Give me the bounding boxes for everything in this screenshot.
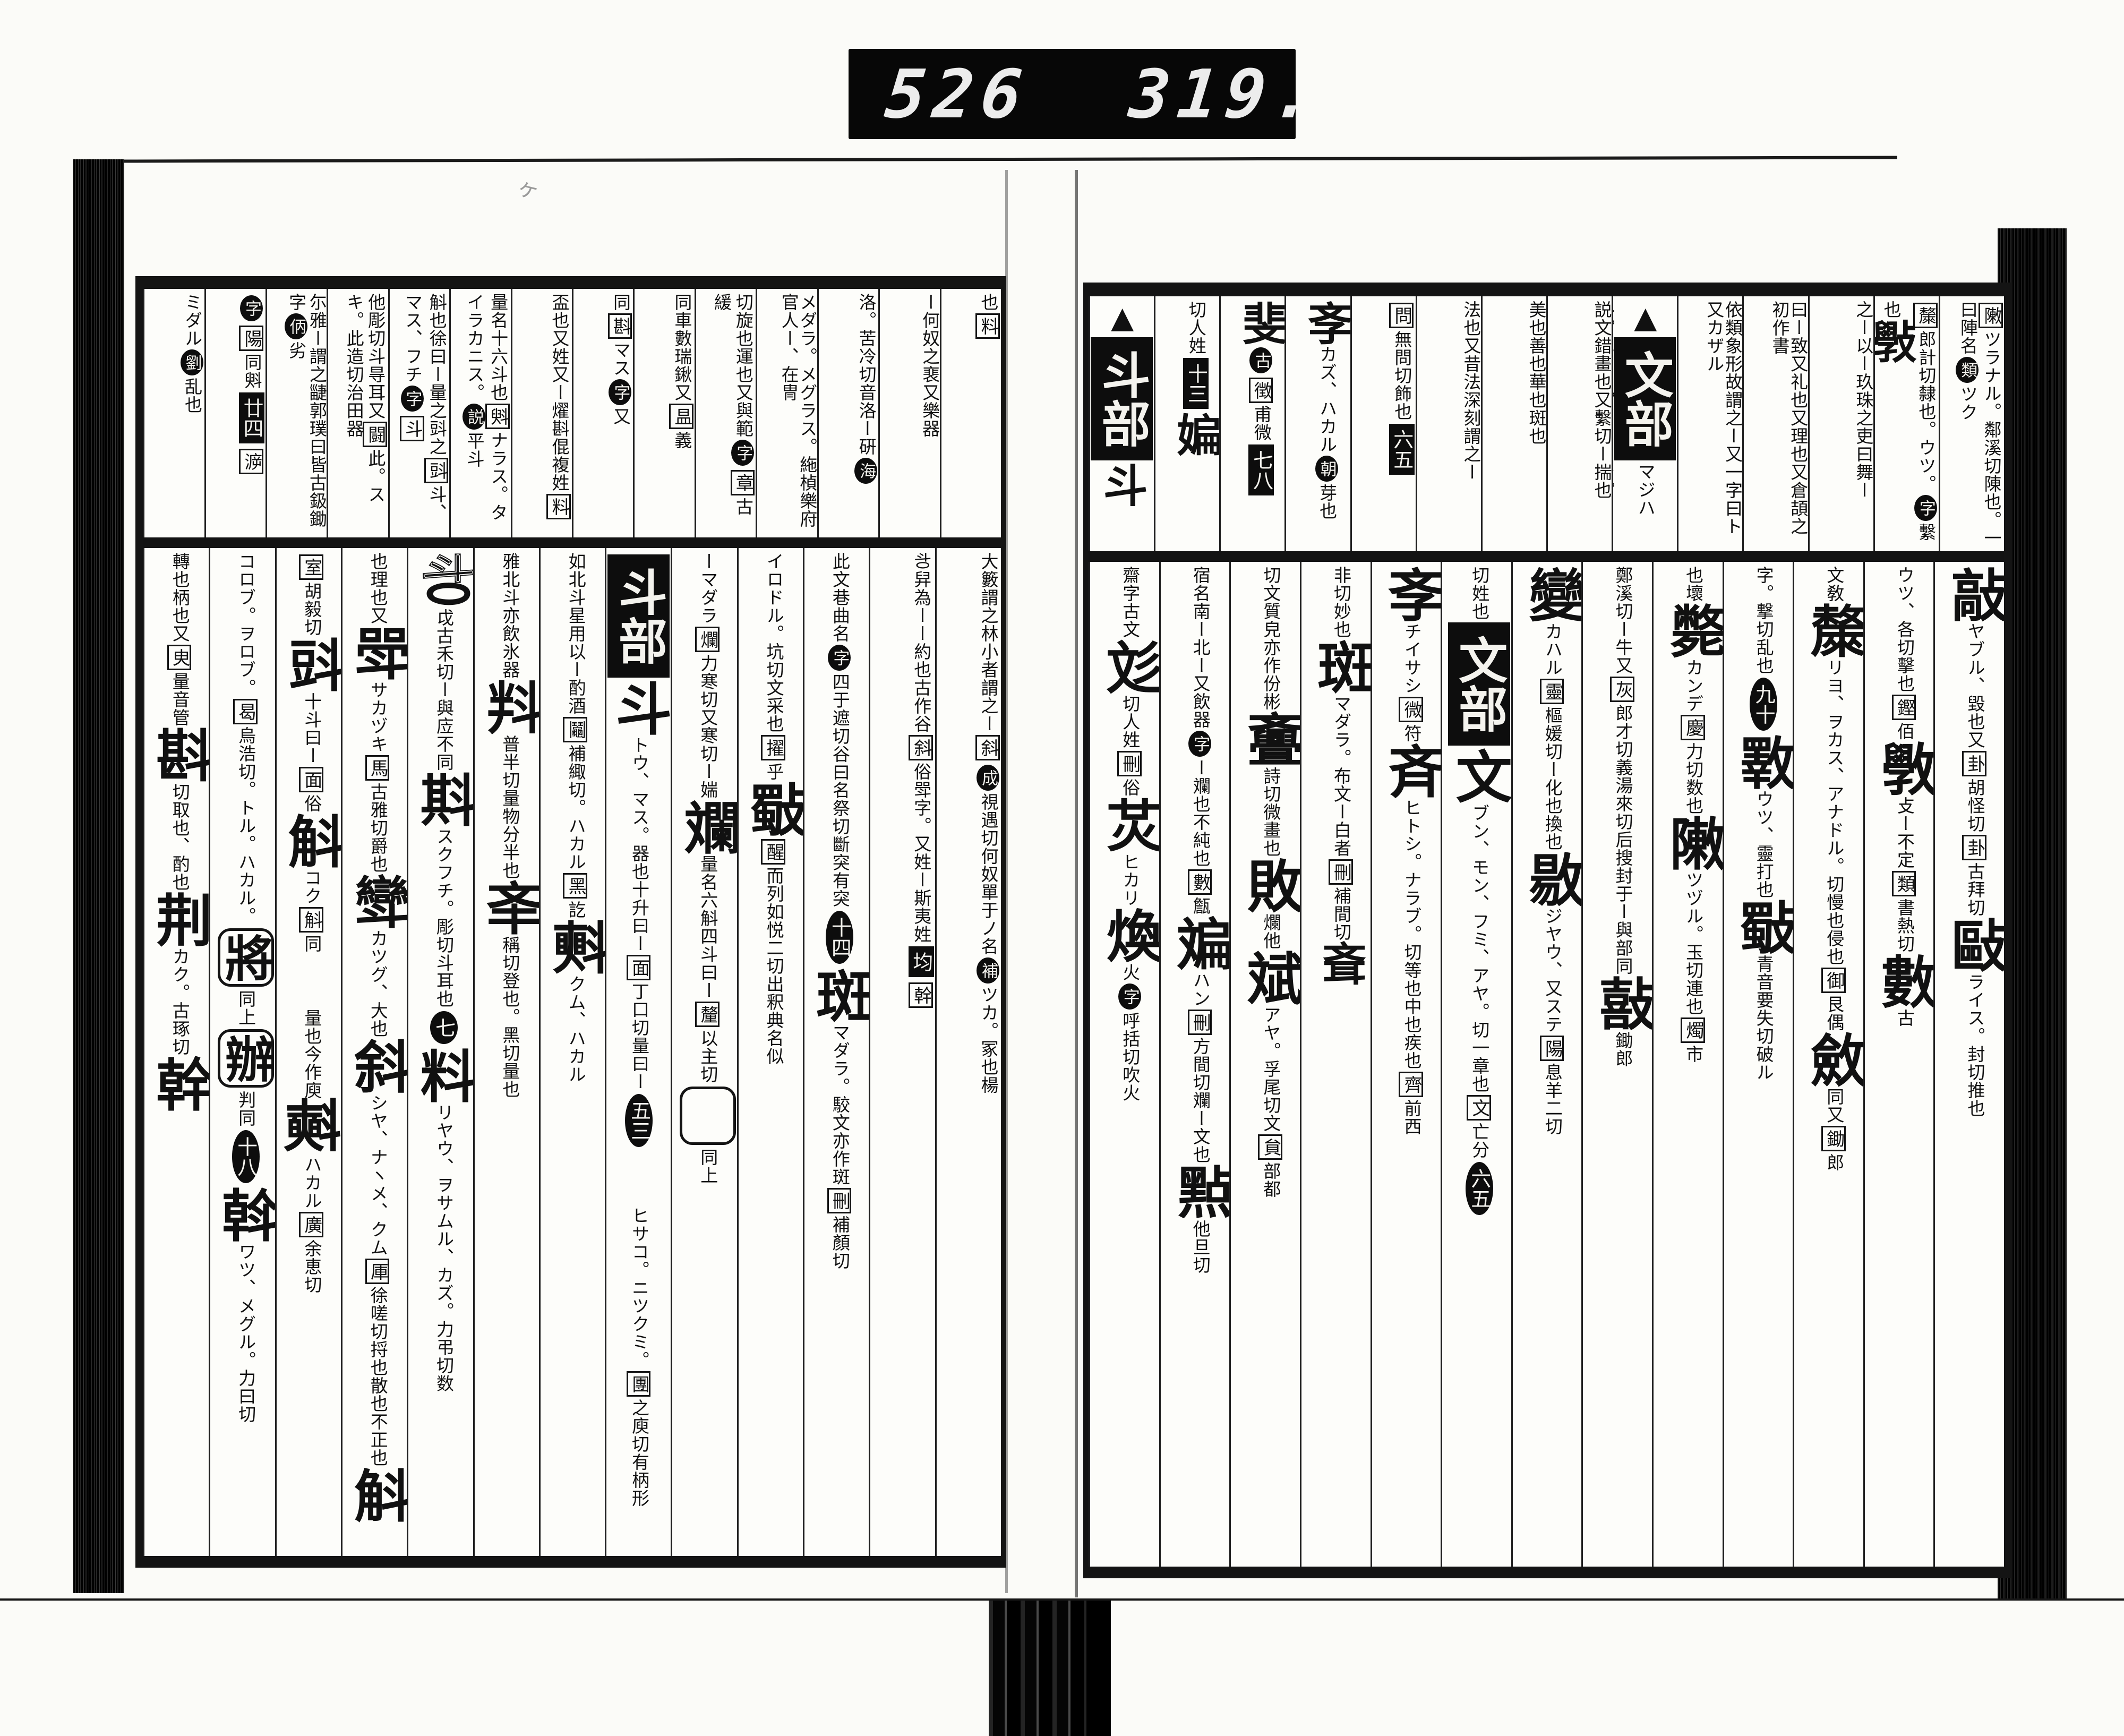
boxed-character: 斜 [975, 735, 1000, 760]
stroke-count-marker: 十八 [232, 1130, 260, 1183]
annotation-text: 之ー以ー玖珠之吏曰舞ー [1853, 301, 1873, 499]
head-character-large: 斌 [1238, 950, 1300, 1006]
annotation-text: 量名六斛四斗曰ー [698, 855, 718, 999]
dict-column: イロドル。坑切文采也擢乎斀醒而列如悦二切出釈典名似 [737, 548, 803, 1556]
annotation-text: 方間切斕ー文也 [1190, 1037, 1211, 1164]
dict-column: ▲斗部斗 [1089, 296, 1154, 551]
annotation-text: 市 [1683, 1045, 1704, 1063]
note-marker: 字 [401, 386, 424, 412]
annotation-text: 爛他 [1261, 913, 1281, 950]
dict-column: 同斟マス字又 [572, 289, 633, 537]
annotation-text: 十斗曰ー [302, 692, 322, 765]
annotation-text: ウツ、靈打也 [1753, 790, 1774, 899]
annotation-text: サカヅキ [367, 681, 388, 753]
note-marker: 㑂 [285, 313, 307, 339]
boxed-character: 鋤 [1821, 1126, 1846, 1151]
annotation-text: 切人姓 [1120, 695, 1141, 749]
dict-column: 美也善也華也斑也 [1481, 296, 1546, 551]
boxed-character: 問 [1389, 303, 1414, 328]
annotation-text: コロブ。ヲロブ。 [236, 552, 256, 697]
note-marker: 成 [977, 765, 999, 791]
head-character-large: 㪺 [543, 919, 605, 975]
annotation-text: ヒトシ。ナラブ。切等也中也疾也 [1401, 799, 1422, 1070]
head-character-framed: 辦 [218, 1029, 274, 1088]
annotation-text: 同斞 [242, 353, 262, 389]
head-character-large: 敼 [1590, 975, 1652, 1031]
annotation-text: ブン、モン、フミ、アヤ。切一章也 [1469, 804, 1490, 1093]
annotation-text: 如北斗星用以ー酌酒 [566, 552, 586, 715]
annotation-text: 四于遮切谷曰名 [829, 673, 850, 799]
head-character-large: 㸃 [1167, 1164, 1229, 1220]
annotation-text: 戉古禾切ー與㡴不同 [434, 609, 455, 771]
note-marker: 字 [240, 295, 263, 321]
boxed-character: 昷 [669, 404, 693, 429]
annotation-text: 尓雅ー謂之疀郭璞 [306, 293, 327, 438]
annotation-text: 攴ー不定 [1894, 797, 1915, 869]
boxed-character: 數 [1188, 869, 1212, 895]
annotation-text: イロドル。坑切文采也 [764, 552, 784, 733]
head-character: 斐 [1235, 301, 1284, 345]
annotation-text: ワツ、メグル。力曰切 [236, 1243, 256, 1423]
head-character-framed: 𣂐 [680, 1087, 736, 1145]
annotation-text: 古雅切爵也 [367, 783, 388, 873]
note-marker: 字 [1188, 731, 1211, 757]
section-triangle-icon: ▲ [1105, 301, 1140, 335]
head-character-large: 斃 [1660, 602, 1723, 659]
boxed-character: 㴑 [239, 449, 263, 474]
boxed-character: 靈 [1540, 679, 1564, 704]
annotation-text: 判同 [236, 1091, 256, 1127]
annotation-text: ツカ。冢也楊 [978, 986, 999, 1094]
annotation-text: 切旋也運也又與範 [733, 293, 753, 438]
dict-column: 斐古徴甫微七八 [1219, 296, 1284, 551]
section-header: 斗部 [1091, 337, 1153, 460]
dict-column: 同車數瑞鍬又昷義 [633, 289, 694, 537]
annotation-text: 息羊二切 [1542, 1063, 1563, 1135]
annotation-text: カンデ [1683, 659, 1704, 713]
dict-column: 文敎斄リヨ、ヲカス、アナドル。切慢也侵也御艮偶斂同又鋤郎 [1793, 562, 1863, 1567]
annotation-text: 盃也又姓又ー燿 [549, 293, 570, 420]
boxed-character: 文 [1467, 1095, 1491, 1121]
annotation-text: スクフチ。彫切斗耳也 [434, 827, 455, 1008]
annotation-text: 胡怪切 [1965, 779, 1985, 833]
boxed-character: 醒 [761, 839, 785, 865]
annotation-text: 斟倱複姓 [549, 420, 570, 492]
boxed-character: 刪 [827, 1188, 852, 1213]
boxed-character: 面 [627, 955, 651, 980]
annotation-text: 古 [1894, 1009, 1915, 1027]
annotation-text: 依類象形故謂之ー [1722, 301, 1742, 445]
annotation-text: コク [302, 869, 322, 905]
annotation-text: 視遇切何奴單于ノ名 [978, 793, 999, 955]
tier-divider [1089, 551, 2004, 562]
annotation-text: 以主切 [698, 1029, 718, 1083]
boxed-character: 齊 [1399, 1072, 1423, 1097]
head-character-large: 𣂆 [279, 953, 341, 1009]
boxed-character: 鏗 [1892, 695, 1916, 720]
dict-column: 字。撃切乱也九十斁ウツ、靈打也斀青音要失切破ル [1723, 562, 1793, 1567]
head-character-large: 斡 [213, 1186, 275, 1243]
dict-column: 轉也柄也又㬰量音管斟切取也、酌也荆カク。古琢切幹 [143, 548, 209, 1556]
dict-column: 法也又昔法深刻謂之ー [1416, 296, 1481, 551]
annotation-text: ーマダラ [698, 552, 718, 625]
dict-column: 此文巷曲名字四于遮切谷曰名祭切斷突有突十四斑マダラ。駮文亦作斑刪補顏切 [803, 548, 869, 1556]
dict-column: ーマダラ爛力寒切又寒切ー媏斕量名六斛四斗曰ー釐以主切𣂐同上 [671, 548, 736, 1556]
head-character-large: 數 [1871, 953, 1933, 1009]
annotation-text: 他旦切 [1190, 1220, 1211, 1274]
annotation-text: ヤブル、毀也又 [1965, 622, 1985, 749]
boxed-character: 類 [1892, 871, 1916, 896]
binding-band [73, 159, 124, 1593]
dict-column: 切文質皃亦作份彬斖詩切微畫也敗爛他斌アヤ。孚尾切文貟部都 [1229, 562, 1300, 1567]
annotation-text: 普半切量物分半也 [500, 735, 520, 879]
stroke-count-marker: 廿四 [239, 392, 264, 443]
boxed-character: 卦 [1962, 835, 1986, 860]
annotation-text: 齋字古文 [1120, 566, 1141, 638]
boxed-character: 廣 [299, 1212, 323, 1237]
head-character-large: 敶 [1660, 815, 1723, 871]
annotation-text: 古拜切 [1965, 862, 1985, 917]
annotation-text: 符 [1401, 724, 1422, 742]
annotation-text: 切人姓 [1186, 301, 1206, 355]
annotation-text: 此文巷曲名 [829, 552, 850, 643]
dict-column: 量名十六斗也斞ナラス。タイラカニス。説平斗 [449, 289, 510, 537]
head-character-large: 斒 [1167, 915, 1229, 971]
note-marker: 字 [1118, 984, 1141, 1010]
annotation-text: 郎 [1824, 1153, 1845, 1171]
boxed-character: 御 [1821, 968, 1846, 993]
section-header: 文部 [1448, 622, 1510, 746]
head-character-large: 敺 [1942, 917, 2004, 973]
annotation-text: 祭切斷突有突 [829, 799, 850, 908]
annotation-text: 亡分 [1469, 1123, 1490, 1159]
boxed-character: 慶 [1681, 715, 1705, 740]
boxed-character: 幹 [909, 982, 933, 1008]
boxed-character: 斞 [485, 404, 510, 429]
annotation-text: 洛。苦冷切音洛ー硏 [856, 293, 877, 456]
dict-column: 切旋也運也又與範字章古緩 [695, 289, 756, 537]
annotation-text: カズ、ハカル [1317, 345, 1338, 454]
stroke-count-marker: 七八 [1248, 444, 1274, 495]
boxed-character: 釐 [695, 1002, 720, 1027]
head-character-large: 斝 [345, 625, 407, 681]
annotation-text: 同又 [1824, 1088, 1845, 1124]
head-character-large: 㪷 [279, 636, 341, 692]
annotation-text: 佰 [1894, 722, 1915, 740]
boxed-character: 斜 [909, 735, 933, 760]
annotation-text: ー斕也不純也 [1190, 759, 1211, 867]
head-character-large: 斂 [1801, 1031, 1863, 1088]
dict-column: コロブ。ヲロブ。曷烏浩切。トル。ハカル。將同上辦判同十八斡ワツ、メグル。力曰切 [209, 548, 275, 1556]
head-character-large: 斄 [1801, 602, 1863, 659]
head-character-large: 斟 [147, 726, 209, 783]
annotation-text: 部都 [1261, 1162, 1281, 1198]
right-page: 敶ツラナル。鄰溪切陳也。一曰陣名類ツク斄郎計切隸也。ウツ。字繫也斅之ー以ー玖珠之… [1083, 283, 2012, 1578]
annotation-text: 前西 [1401, 1099, 1422, 1135]
annotation-text: 火 [1120, 963, 1141, 981]
annotation-text: 美也善也華也斑也 [1526, 301, 1546, 445]
head-character-large: 斀 [1731, 899, 1793, 955]
dict-column: 曰ー致又礼也又理也又倉頡之初作書 [1742, 296, 1808, 551]
note-marker: 補 [977, 957, 999, 984]
head-character: 斈 [1301, 301, 1350, 345]
dict-column: 變カハル靈樞媛切ー化也換也敭ジヤウ、又ステ陽息羊二切 [1511, 562, 1582, 1567]
dict-column: ▲文部マジハル。エカク。ウツクシ。ヨシ。ハナヤカ。ノリ。文字 [1612, 296, 1677, 551]
annotation-text: 胡毅切 [302, 582, 322, 636]
annotation-text: 繫切ー揣也 [1591, 409, 1612, 499]
boxed-character: 㪷 [424, 458, 449, 483]
boxed-character: 敶 [1979, 303, 2003, 328]
annotation-text: マダラ。駮文亦作斑 [829, 1023, 850, 1186]
dict-column: 也料 [940, 289, 1001, 537]
boxed-character: 刪 [1117, 751, 1142, 776]
section-triangle-icon: ▲ [1628, 301, 1663, 335]
dict-column: 也壞斃カンデ慶力切数也敶ツヅル。玉切連也燭市 [1652, 562, 1723, 1567]
dict-column: 問無問切飾也六五 [1350, 296, 1416, 551]
annotation-text: ハカル [302, 1156, 322, 1210]
note-marker: 字 [609, 379, 631, 405]
annotation-text: 徐嗟切捋也散也不正也 [367, 1286, 388, 1467]
note-marker: 字 [1914, 495, 1937, 521]
dict-column: メダラ。メグラス。絁楨樂府官人ー、在冑 [756, 289, 817, 537]
annotation-text: 烏浩切。トル。ハカル。 [236, 726, 256, 925]
annotation-text: ー何奴之裵又樂器 [920, 293, 940, 438]
boxed-character: 闘 [363, 422, 387, 447]
annotation-text: 余恵切 [302, 1239, 322, 1294]
boxed-character: 徴 [1249, 378, 1273, 403]
boxed-character: 貟 [1258, 1134, 1282, 1160]
boxed-character: 室 [299, 554, 323, 580]
head-character-large: 斕 [675, 799, 737, 855]
boxed-character: 馬 [365, 755, 390, 781]
annotation-text: 鄭溪切ー牛又 [1613, 566, 1633, 674]
annotation-text: 樞媛切ー化也換也 [1542, 706, 1563, 851]
note-marker: 朝 [1315, 456, 1338, 482]
head-character-large: 㪻 [345, 873, 407, 929]
boxed-character: 料 [546, 494, 571, 519]
dict-column: 齋字古文彣切人姓刪俗炗ヒカリ煥火字呼括切吹火 [1089, 562, 1159, 1567]
annotation-text: カハル [1542, 622, 1563, 677]
boxed-character: 灰 [1610, 677, 1634, 702]
annotation-text: 同車數瑞鍬又 [672, 293, 692, 401]
head-character-large: 斉 [1378, 742, 1441, 799]
dict-column: 依類象形故謂之ー又一字曰ト又カザル [1677, 296, 1742, 551]
annotation-text: 力寒切又寒切ー媏 [698, 654, 718, 799]
head-character-large: 㪸 [411, 771, 473, 827]
annotation-text: 字。撃切乱也 [1753, 566, 1774, 674]
head-character-large: 煥 [1097, 907, 1159, 963]
annotation-text: 雅北斗亦飲氷器 [500, 552, 520, 679]
annotation-text: 之庾切有柄形 [629, 1399, 649, 1507]
dict-column: 大籔謂之林小者謂之ー斜成視遇切何奴單于ノ名補ツカ。冢也楊 [935, 548, 1001, 1556]
annotation-text: 鋤郎 [1613, 1031, 1633, 1067]
boxed-character: 鬮 [563, 717, 587, 742]
annotation-text: メダラ。メグラス。 [797, 293, 817, 456]
annotation-text: 甫微 [1251, 405, 1272, 441]
dict-column: 㪳舁為ーー約也古作谷斜俗斝字。又姓ー斯夷姓均幹 [869, 548, 935, 1556]
dict-column: 斛也徐曰ー量之㪷之㪷斗、マス、フチ字斗 [388, 289, 449, 537]
head-character-large: 料 [411, 1047, 473, 1104]
annotation-text: ヒカリ [1120, 853, 1141, 907]
section-header: 斗部 [607, 554, 670, 678]
head-character-large: 㪯 [477, 879, 539, 936]
annotation-text: 芽也 [1317, 484, 1338, 520]
stroke-count-marker: 五三 [625, 1094, 653, 1147]
head-character: 斊 [1315, 941, 1368, 986]
note-marker: 字 [828, 645, 851, 671]
dict-column: 㪳戉古禾切ー與㡴不同㪸スクフチ。彫切斗耳也七料リヤウ、ヲサムル、カズ。力弔切数 [407, 548, 473, 1556]
head-character-large: 斀 [741, 781, 803, 837]
annotation-text: 㪳舁為ーー約也古作谷 [911, 552, 932, 733]
annotation-text: 也壞 [1683, 566, 1704, 602]
left-page-bottom-tier: 大籔謂之林小者謂之ー斜成視遇切何奴單于ノ名補ツカ。冢也楊㪳舁為ーー約也古作谷斜俗… [143, 548, 1001, 1556]
annotation-text: 而列如悦二切出釈典名似 [764, 867, 784, 1065]
dict-column: 之ー以ー玖珠之吏曰舞ー [1808, 296, 1873, 551]
stroke-count-marker: 十四 [826, 911, 853, 964]
dict-column: 洛。苦冷切音洛ー硏海 [817, 289, 878, 537]
boxed-character: 擢 [761, 735, 785, 760]
head-character-large: 𣂁 [606, 1150, 671, 1207]
annotation-text: 詩切微畫也 [1261, 767, 1281, 857]
annotation-text: ツヅル。玉切連也 [1683, 871, 1704, 1015]
annotation-text: 斛也徐曰ー量之㪷之 [426, 293, 447, 456]
gutter-shadow-strip [1086, 1601, 1111, 1736]
boxed-character: 刪 [1188, 1010, 1212, 1035]
annotation-text: 平斗 [464, 432, 485, 468]
annotation-text: 無問切飾也 [1392, 330, 1412, 421]
boxed-character: 斟 [608, 313, 632, 339]
boxed-character: 卦 [1962, 751, 1986, 776]
dict-column: ー何奴之裵又樂器 [878, 289, 939, 537]
head-character-large: 炗 [1097, 797, 1159, 853]
dict-column: 也理也又斝サカヅキ馬古雅切爵也㪻カツグ、大也斜シヤ、ナヽメ、クム厙徐嗟切捋也散也… [341, 548, 407, 1556]
annotation-text: クム、ハカル [566, 975, 586, 1083]
annotation-text: 俗斝字。又姓ー斯夷姓 [911, 763, 932, 943]
book-top-edge [121, 156, 1897, 163]
annotation-text: カク。古琢切 [169, 947, 190, 1056]
annotation-text: 補間切 [1331, 887, 1352, 941]
head-character-large: 文 [1446, 748, 1511, 804]
head-character-large: 斖 [1238, 711, 1300, 767]
annotation-text: シヤ、ナヽメ、クム [367, 1094, 388, 1256]
annotation-text: 也 [978, 293, 999, 311]
boxed-character: 爛 [695, 627, 720, 652]
boxed-character: 黑 [563, 873, 587, 899]
annotation-text: 大籔謂之林小者謂之ー [978, 552, 999, 733]
dict-column: 非切妙也斑マダラ。布文ー白者刪補間切斊 [1300, 562, 1371, 1567]
annotation-text: 俗 [1120, 779, 1141, 797]
head-character-large: 荆 [147, 891, 209, 947]
annotation-text: ライス。封切推也 [1965, 973, 1985, 1117]
head-character-large: 𣂏 [279, 1099, 341, 1156]
stroke-count-marker: 六五 [1466, 1162, 1493, 1215]
annotation-text: 同 [302, 935, 322, 953]
boxed-character: 陽 [1540, 1036, 1564, 1061]
annotation-text: 補緅切。ハカル [566, 745, 586, 871]
boxed-character: 料 [975, 313, 1000, 339]
boxed-character: 陽 [239, 326, 263, 351]
dict-column: 他彫切斗㝵耳又闘此。スキ。此造切治田器 [327, 289, 388, 537]
spine-line-right [1075, 170, 1078, 1597]
dict-column: 敲ヤブル、毀也又卦胡怪切卦古拜切敺ライス。封切推也 [1933, 562, 2004, 1567]
dict-column: 盃也又姓又ー燿斟倱複姓料 [511, 289, 572, 537]
head-character-large: 斈 [1378, 566, 1441, 622]
annotation-text: 乎 [764, 763, 784, 781]
annotation-text: 説文錯畫也又 [1591, 301, 1612, 409]
annotation-text: 量也今作庾 [302, 1009, 322, 1099]
right-page-bottom-tier: 敲ヤブル、毀也又卦胡怪切卦古拜切敺ライス。封切推也ウツ、各切擊也鏗佰斆攴ー不定類… [1089, 562, 2004, 1567]
annotation-text: 文敎 [1824, 566, 1845, 602]
right-page-top-tier: 敶ツラナル。鄰溪切陳也。一曰陣名類ツク斄郎計切隸也。ウツ。字繫也斅之ー以ー玖珠之… [1089, 296, 2004, 551]
dict-column: 切姓也文部文ブン、モン、フミ、アヤ。切一章也文亡分六五 [1441, 562, 1511, 1567]
head-character-large: 斗 [606, 680, 671, 736]
head-character-large: 彣 [1097, 638, 1159, 695]
head-character-large: 斆 [1871, 740, 1933, 797]
annotation-text: 書熱切 [1894, 899, 1915, 953]
annotation-text: 宿名南ー北ー又飲器 [1190, 566, 1211, 729]
dict-column: 尓雅ー謂之疀郭璞曰皆古鈒鋤字㑂劣 [265, 289, 327, 537]
stroke-count-marker: 七 [430, 1011, 458, 1044]
annotation-text: ジヤウ、又ステ [1542, 907, 1563, 1033]
boxed-character: 章 [731, 470, 755, 495]
annotation-text: 切文質皃亦作份彬 [1261, 566, 1281, 711]
dict-column: 室胡毅切㪷十斗曰ー面俗斛コク斛同𣂆量也今作庾𣂏ハカル廣余恵切 [275, 548, 341, 1556]
boxed-character: 團 [627, 1371, 651, 1397]
head-character: 斅 [1873, 319, 1917, 363]
annotation-text: 劣 [286, 341, 307, 360]
dict-column: 斄郎計切隸也。ウツ。字繫也斅 [1873, 296, 1939, 551]
head-character: 斗 [1096, 463, 1149, 507]
boxed-character: 燭 [1681, 1017, 1705, 1043]
boxed-character: 刪 [1329, 859, 1353, 885]
head-character: 媥 [1170, 412, 1219, 457]
annotation-text: 郎才切義 [1613, 704, 1633, 776]
annotation-text: 義 [672, 431, 692, 449]
boxed-character: 微 [1399, 697, 1423, 722]
annotation-text: マダラ。布文ー白者 [1331, 695, 1352, 857]
dict-column: 斈チイサシ微符斉ヒトシ。ナラブ。切等也中也疾也齊前西 [1371, 562, 1441, 1567]
annotation-text: 量音管 [169, 672, 190, 726]
head-character-large: 幹 [147, 1056, 209, 1112]
annotation-text: 同上 [698, 1148, 718, 1184]
section-header: 文部 [1614, 337, 1676, 460]
annotation-text: 也理也又 [367, 552, 388, 625]
note-marker: 説 [463, 404, 485, 430]
annotation-text: 補顏切 [829, 1216, 850, 1270]
head-character-large: 斛 [345, 1467, 407, 1523]
annotation-text: ウツ、各切擊也 [1894, 566, 1915, 692]
stroke-count-marker: 十三 [1183, 358, 1209, 409]
annotation-text: 切取也、酌也 [169, 783, 190, 891]
boxed-character: 㬰 [167, 645, 192, 670]
annotation-text: ツラナル。鄰溪切陳也。一曰陣名 [1957, 301, 2002, 547]
stroke-count-marker: 九十 [1750, 678, 1777, 731]
counter-right-digits: 319. [1126, 55, 1325, 133]
annotation-text: 量名十六斗也 [488, 293, 509, 401]
note-marker: 古 [1249, 347, 1272, 373]
boxed-character: 厙 [365, 1259, 390, 1284]
head-character-large: 敲 [1942, 566, 2004, 622]
dict-column: 宿名南ー北ー又飲器字ー斕也不純也數甔斒ハン刪方間切斕ー文也㸃他旦切 [1159, 562, 1230, 1567]
annotation-text: 力切数也 [1683, 742, 1704, 815]
annotation-text: リヨ、ヲカス、アナドル。切慢也侵也 [1824, 659, 1845, 965]
annotation-text: 同 [610, 293, 631, 311]
head-character-large: 斜 [345, 1038, 407, 1094]
note-marker: 海 [854, 458, 877, 484]
head-character-large: 斁 [1731, 734, 1793, 790]
note-marker: 類 [1956, 357, 1979, 383]
annotation-text: 甔 [1190, 897, 1211, 915]
